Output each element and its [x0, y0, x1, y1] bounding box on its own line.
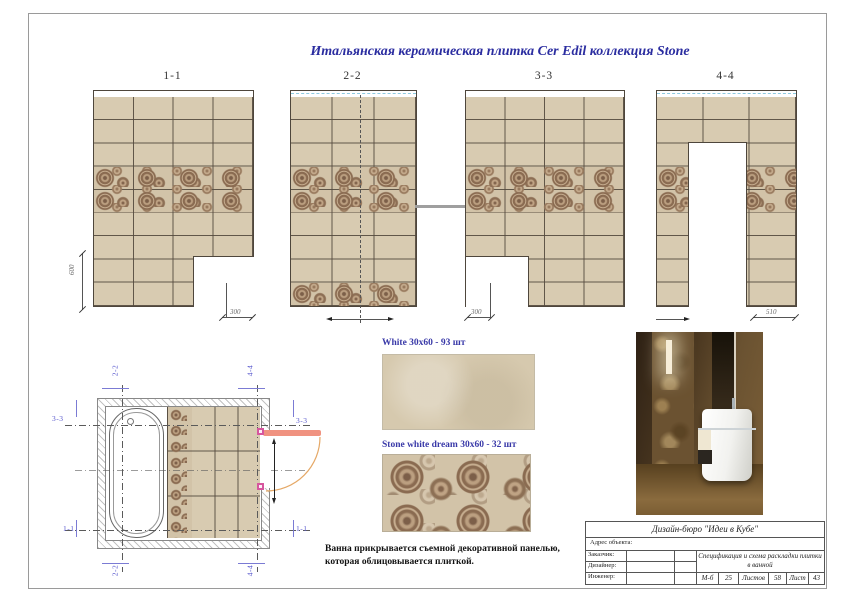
dimension-510-text: 510	[766, 308, 777, 316]
scale-value: 25	[719, 573, 738, 584]
bath-panel-note: Ванна прикрывается съемной декоративной …	[325, 543, 600, 569]
dimension-510-line	[753, 317, 795, 318]
plan-label-3-3-left: 3-3	[52, 414, 64, 423]
page-title: Итальянская керамическая плитка Cer Edil…	[160, 44, 840, 60]
deco-tile-band-bottom	[291, 283, 416, 306]
scale-label: М-б	[697, 573, 718, 584]
plan-label-2-2-bottom: 2-2	[110, 565, 119, 577]
sheets-value: 58	[769, 573, 786, 584]
elevation-3-3-label: 3-3	[465, 70, 623, 82]
photo-dark-towel	[698, 450, 712, 464]
bath-panel-cutout	[193, 256, 254, 307]
ceiling-dash-line	[657, 93, 796, 94]
section-line-1-1	[65, 530, 312, 531]
tb-line	[674, 550, 675, 584]
photo-wall-light	[666, 340, 672, 374]
arrow-up	[272, 438, 276, 444]
elevation-1-1-drawing	[93, 90, 254, 307]
deco-tile-band	[466, 167, 624, 213]
section-tick	[238, 563, 265, 564]
tb-line	[586, 550, 824, 551]
arrow-right	[388, 317, 394, 321]
axis-dash-line	[360, 95, 361, 323]
bathtub	[109, 408, 164, 538]
section-tick	[293, 400, 294, 417]
door-opening	[688, 142, 747, 307]
spec-title: Спецификация и схема раскладки плитки в …	[698, 552, 822, 570]
dimension-300-text: 300	[471, 308, 482, 316]
title-block: Дизайн-бюро "Идеи в Кубе" Адрес объекта:…	[585, 521, 825, 585]
bath-panel-cutout	[466, 256, 529, 307]
plan-tile-area	[192, 407, 260, 538]
dimension-arrow-line	[330, 319, 390, 320]
section-line-2-2	[122, 385, 123, 572]
plan-deco-strip	[167, 407, 194, 538]
dimension-600-text: 600	[68, 265, 76, 276]
sample-stone-dream-label: Stone white dream 30x60 - 32 шт	[382, 440, 516, 450]
arrow-left	[326, 317, 332, 321]
sample-stone-dream-tile	[382, 454, 531, 532]
designer-label: Дизайнер:	[588, 562, 616, 569]
dimension-300-line	[222, 317, 252, 318]
section-tick	[76, 400, 77, 417]
tb-line	[586, 537, 824, 538]
section-tick	[102, 388, 129, 389]
section-line-4-4	[257, 385, 258, 572]
address-label: Адрес объекта:	[590, 539, 632, 546]
plan-label-4-4-top: 4-4	[245, 365, 254, 377]
photo-towel	[698, 430, 711, 452]
door-jamb-marker-top	[257, 428, 264, 435]
design-bureau-name: Дизайн-бюро "Идеи в Кубе"	[586, 524, 824, 534]
engineer-label: Инженер:	[588, 573, 615, 580]
deco-tile-band	[94, 167, 253, 213]
arrow-right	[684, 317, 690, 321]
arrow-down	[272, 498, 276, 504]
sheets-label: Листов	[739, 573, 768, 584]
elevation-2-2-label: 2-2	[290, 70, 415, 82]
door-dim-line	[274, 441, 275, 499]
ceiling-dash-line	[291, 93, 416, 94]
bathtub-drain	[127, 418, 134, 425]
section-tick	[76, 520, 77, 537]
plan-label-4-4-bottom: 4-4	[245, 565, 254, 577]
section-tick	[238, 388, 265, 389]
tb-line	[626, 550, 627, 584]
note-line-1: Ванна прикрывается съемной декоративной …	[325, 543, 600, 556]
section-connector-line	[415, 205, 465, 208]
door-jamb-marker-bottom	[257, 483, 264, 490]
sample-white-tile	[382, 354, 535, 430]
plan-label-3-3-right: 3-3	[296, 416, 308, 425]
plan-label-1-1-left: 1-1	[63, 524, 75, 533]
sample-white-label: White 30x60 - 93 шт	[382, 338, 465, 348]
section-line-3-3	[65, 425, 312, 426]
bathroom-photo	[636, 332, 763, 515]
section-tick	[102, 563, 129, 564]
elevation-1-1-label: 1-1	[93, 70, 252, 82]
dim-guide	[490, 283, 491, 317]
elevation-2-2-drawing	[290, 90, 417, 307]
section-tick	[293, 520, 294, 537]
customer-label: Заказчик:	[588, 551, 614, 558]
sheet-label: Лист	[787, 573, 808, 584]
deco-tile-band	[291, 167, 416, 213]
dimension-600-line	[82, 253, 83, 310]
elevation-3-3-drawing	[465, 90, 625, 307]
dimension-300-text: 300	[230, 308, 241, 316]
plan-label-2-2-top: 2-2	[110, 365, 119, 377]
plan-label-1-1-right: 1-1	[296, 524, 308, 533]
dimension-300-line	[467, 317, 491, 318]
drawing-sheet: Итальянская керамическая плитка Cer Edil…	[0, 0, 849, 600]
note-line-2: которая облицовывается плиткой.	[325, 556, 600, 569]
sheet-value: 43	[809, 573, 824, 584]
elevation-4-4-label: 4-4	[656, 70, 795, 82]
dim-guide	[226, 283, 227, 317]
dimension-arrow-line	[656, 319, 686, 320]
elevation-4-4-drawing	[656, 90, 797, 307]
